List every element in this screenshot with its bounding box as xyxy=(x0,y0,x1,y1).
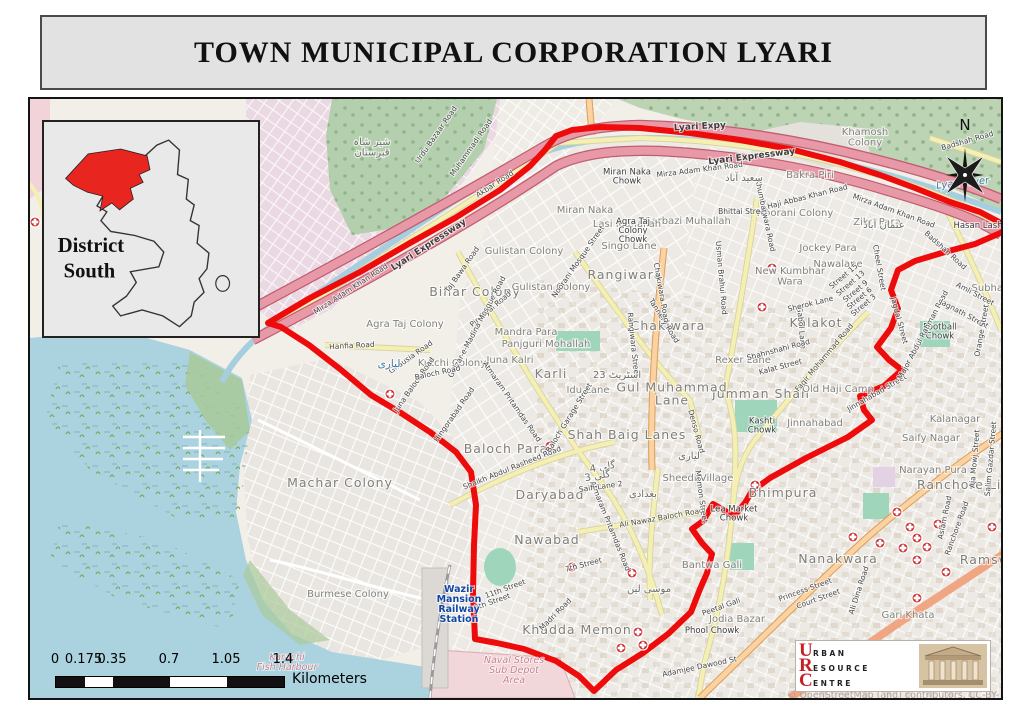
map-label: Daryabad xyxy=(515,487,584,502)
scale-tick: 0.7 xyxy=(159,652,180,667)
map-label: Old Haji Camp xyxy=(802,384,874,395)
page-title: TOWN MUNICIPAL CORPORATION LYARI xyxy=(194,36,833,70)
map-label: لیاری xyxy=(378,358,401,370)
urc-word: ENTRE xyxy=(813,679,853,688)
map-label: Hasan Lash xyxy=(953,221,1001,231)
map-label: Mandra Para xyxy=(495,327,558,338)
map-label: Gulistan Colony xyxy=(485,246,564,257)
hospital-icon xyxy=(912,533,922,543)
map-label: Kalanagar xyxy=(930,414,981,425)
urc-building-image xyxy=(919,644,987,688)
compass-rose: N xyxy=(928,110,1002,210)
hospital-icon xyxy=(898,543,908,553)
hospital-icon xyxy=(848,532,858,542)
map-label: موسی لین xyxy=(627,584,671,595)
compass-north-label: N xyxy=(959,116,970,134)
map-label: سعید آباد xyxy=(725,171,763,184)
hospital-icon xyxy=(616,643,626,653)
title-bar: TOWN MUNICIPAL CORPORATION LYARI xyxy=(40,15,987,90)
map-label: Gari Khata xyxy=(881,610,934,621)
map-label: Burmese Colony xyxy=(307,589,389,600)
hospital-icon xyxy=(941,567,951,577)
inset-district-map: District South xyxy=(42,120,260,338)
hospital-icon xyxy=(638,640,648,650)
map-label: Agra TajColonyChowk xyxy=(616,217,650,245)
map-label: Ramswami xyxy=(960,552,1001,567)
map-label: Saify Nagar xyxy=(902,433,961,444)
map-label: KhamoshColony xyxy=(842,127,888,149)
hospital-icon xyxy=(905,522,915,532)
hospital-icon xyxy=(385,389,395,399)
hospital-icon xyxy=(892,507,902,517)
hospital-icon xyxy=(633,627,643,637)
scale-unit-label: Kilometers xyxy=(292,671,367,687)
scale-bar: 0 0.175 0.35 0.7 1.05 1.4 Kilometers xyxy=(45,652,385,696)
map-label: Panjguri Mohallah xyxy=(502,339,591,350)
hospital-icon xyxy=(912,555,922,565)
scale-tick: 0.175 xyxy=(65,652,102,667)
map-label: KashtiChowk xyxy=(748,417,776,436)
map-label: Bakra Piri xyxy=(786,170,834,181)
map-label: بغدادی xyxy=(629,489,657,500)
scale-tick: 0.35 xyxy=(98,652,127,667)
urc-letter: C xyxy=(799,674,813,688)
map-label: Phool Chowk xyxy=(685,626,739,636)
map-label: عثمان آباد xyxy=(863,218,904,231)
map-label: Narayan Pura xyxy=(899,465,967,476)
map-label: Agra Taj Colony xyxy=(366,319,443,330)
scale-tick: 1.05 xyxy=(212,652,241,667)
map-label: Bantwa Gali xyxy=(682,560,742,571)
map-label: Karli xyxy=(535,366,568,381)
scale-tick: 1.4 xyxy=(273,652,294,667)
map-label: Bhimpura xyxy=(749,485,818,500)
map-label: Nanakwara xyxy=(798,551,878,566)
map-document-page: TOWN MUNICIPAL CORPORATION LYARI xyxy=(0,0,1024,724)
map-label: لیاری xyxy=(678,451,700,462)
scale-tick: 0 xyxy=(51,652,59,667)
map-label: Miran Naka xyxy=(557,205,614,216)
map-label: Jockey Para xyxy=(798,243,856,254)
hospital-icon xyxy=(922,542,932,552)
map-label: 23 اسٹریٹ xyxy=(593,370,641,381)
map-label: Jinnahabad xyxy=(786,418,843,429)
map-label: Shah Baig Lanes xyxy=(568,427,687,442)
hospital-icon xyxy=(30,217,40,227)
urc-word: RBAN xyxy=(813,649,847,658)
hospital-icon xyxy=(875,538,885,548)
hospital-icon xyxy=(757,302,767,312)
map-label: Nawabad xyxy=(514,532,579,547)
scale-bar-segments xyxy=(55,676,285,688)
urc-logo: URBAN RESOURCE CENTRE xyxy=(795,640,991,692)
hospital-icon xyxy=(987,522,997,532)
map-label: Jodia Bazar xyxy=(708,614,766,625)
map-label: شیر شاہقبرستان xyxy=(353,137,390,159)
map-label: Rangiwara xyxy=(587,267,662,282)
map-label: Machar Colony xyxy=(287,475,393,490)
hospital-icon xyxy=(912,593,922,603)
urc-word: ESOURCE xyxy=(813,664,870,673)
